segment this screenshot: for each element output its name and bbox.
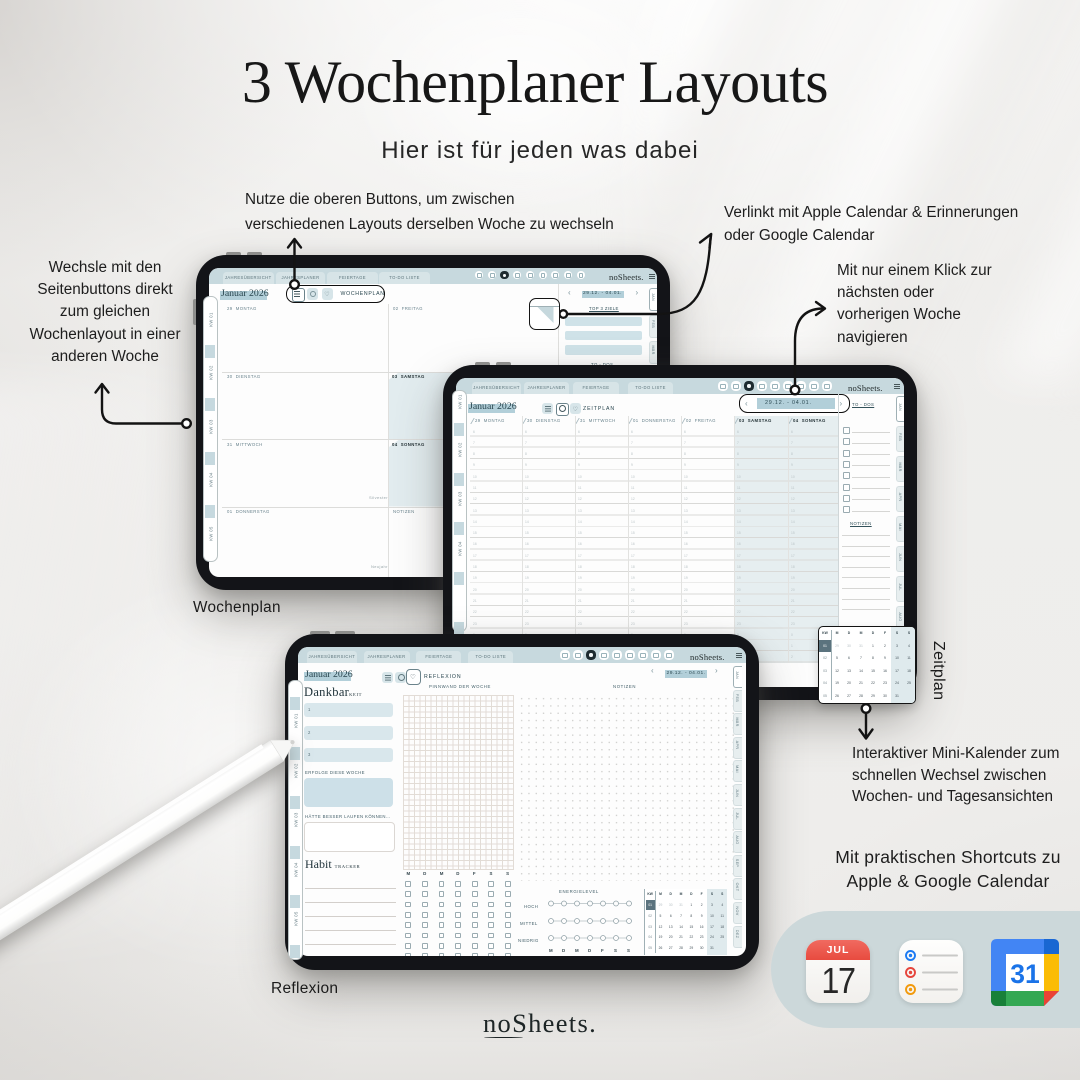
- svg-text:31: 31: [1010, 959, 1039, 989]
